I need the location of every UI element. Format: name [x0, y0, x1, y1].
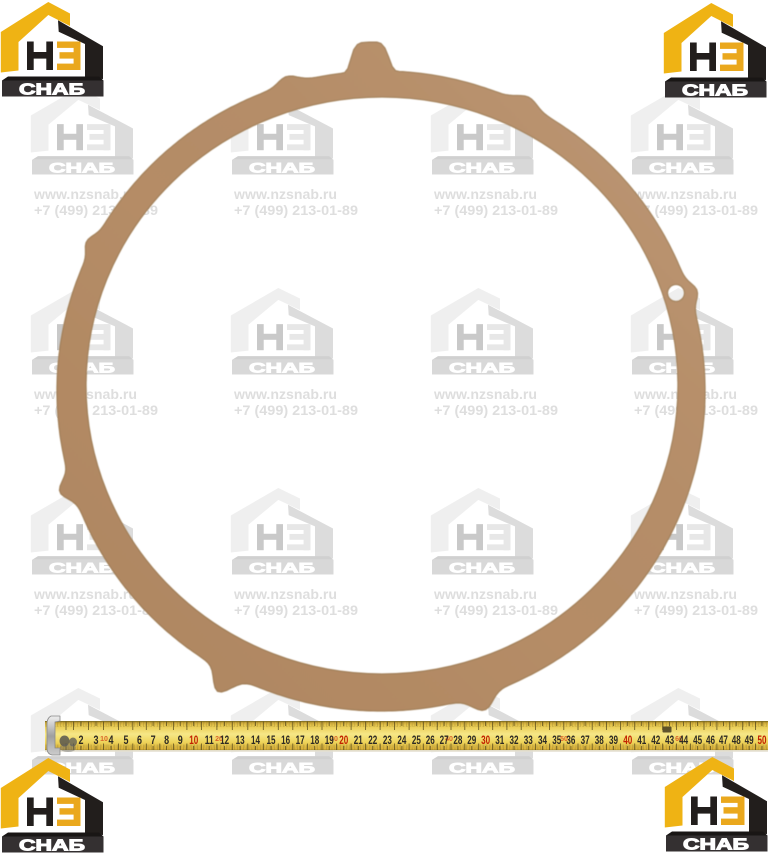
svg-text:5: 5: [124, 733, 129, 747]
svg-text:13: 13: [236, 733, 245, 747]
svg-text:3: 3: [94, 733, 99, 747]
svg-text:31: 31: [495, 733, 504, 747]
svg-text:33: 33: [524, 733, 533, 747]
svg-text:28: 28: [453, 733, 462, 747]
svg-text:+7 (499) 213-01-89: +7 (499) 213-01-89: [434, 203, 558, 218]
svg-text:www.nzsnab.ru: www.nzsnab.ru: [233, 387, 337, 402]
svg-text:14: 14: [251, 733, 260, 747]
svg-text:www.nzsnab.ru: www.nzsnab.ru: [433, 187, 537, 202]
svg-text:27: 27: [440, 733, 449, 747]
svg-text:www.nzsnab.ru: www.nzsnab.ru: [233, 587, 337, 602]
svg-text:49: 49: [745, 733, 754, 747]
svg-text:17: 17: [296, 733, 305, 747]
svg-text:9: 9: [178, 733, 183, 747]
svg-text:www.nzsnab.ru: www.nzsnab.ru: [233, 187, 337, 202]
svg-text:11: 11: [205, 733, 214, 747]
svg-text:2: 2: [79, 733, 84, 747]
svg-text:23: 23: [383, 733, 392, 747]
svg-text:4: 4: [109, 733, 114, 747]
svg-text:19: 19: [325, 733, 334, 747]
svg-text:38: 38: [595, 733, 604, 747]
svg-text:+7 (499) 213-01-89: +7 (499) 213-01-89: [634, 603, 758, 618]
svg-text:www.nzsnab.ru: www.nzsnab.ru: [633, 587, 737, 602]
svg-text:18: 18: [310, 733, 319, 747]
svg-text:www.nzsnab.ru: www.nzsnab.ru: [433, 387, 537, 402]
svg-text:8: 8: [164, 733, 169, 747]
svg-text:www.nzsnab.ru: www.nzsnab.ru: [433, 587, 537, 602]
svg-text:+7 (499) 213-01-89: +7 (499) 213-01-89: [234, 403, 358, 418]
svg-text:40: 40: [623, 733, 632, 747]
svg-text:+7 (499) 213-01-89: +7 (499) 213-01-89: [34, 403, 158, 418]
svg-text:24: 24: [397, 733, 406, 747]
svg-text:+7 (499) 213-01-89: +7 (499) 213-01-89: [234, 603, 358, 618]
svg-text:10: 10: [189, 733, 198, 747]
svg-text:34: 34: [538, 733, 547, 747]
svg-text:12: 12: [220, 733, 229, 747]
svg-text:20: 20: [339, 733, 348, 747]
svg-text:+7 (499) 213-01-89: +7 (499) 213-01-89: [434, 603, 558, 618]
svg-text:7: 7: [151, 733, 156, 747]
svg-text:42: 42: [651, 733, 660, 747]
svg-text:22: 22: [368, 733, 377, 747]
svg-text:41: 41: [637, 733, 646, 747]
svg-text:www.nzsnab.ru: www.nzsnab.ru: [33, 587, 137, 602]
svg-text:32: 32: [510, 733, 519, 747]
svg-text:37: 37: [581, 733, 590, 747]
svg-text:6: 6: [137, 733, 142, 747]
svg-text:+7 (499) 213-01-89: +7 (499) 213-01-89: [434, 403, 558, 418]
svg-text:16: 16: [281, 733, 290, 747]
svg-text:35: 35: [552, 733, 561, 747]
svg-text:45: 45: [693, 733, 702, 747]
svg-text:+7 (499) 213-01-89: +7 (499) 213-01-89: [234, 203, 358, 218]
svg-text:25: 25: [412, 733, 421, 747]
svg-text:46: 46: [706, 733, 715, 747]
svg-text:www.nzsnab.ru: www.nzsnab.ru: [633, 187, 737, 202]
svg-text:43: 43: [665, 733, 674, 747]
svg-text:44: 44: [679, 733, 688, 747]
svg-text:15: 15: [267, 733, 276, 747]
svg-text:36: 36: [566, 733, 575, 747]
svg-text:29: 29: [467, 733, 476, 747]
svg-text:21: 21: [354, 733, 363, 747]
svg-text:10: 10: [100, 736, 108, 743]
svg-text:30: 30: [481, 733, 490, 747]
svg-text:50: 50: [758, 733, 767, 747]
svg-text:+7 (499) 213-01-89: +7 (499) 213-01-89: [34, 603, 158, 618]
svg-text:47: 47: [719, 733, 728, 747]
svg-text:39: 39: [609, 733, 618, 747]
svg-text:26: 26: [426, 733, 435, 747]
svg-text:48: 48: [732, 733, 741, 747]
